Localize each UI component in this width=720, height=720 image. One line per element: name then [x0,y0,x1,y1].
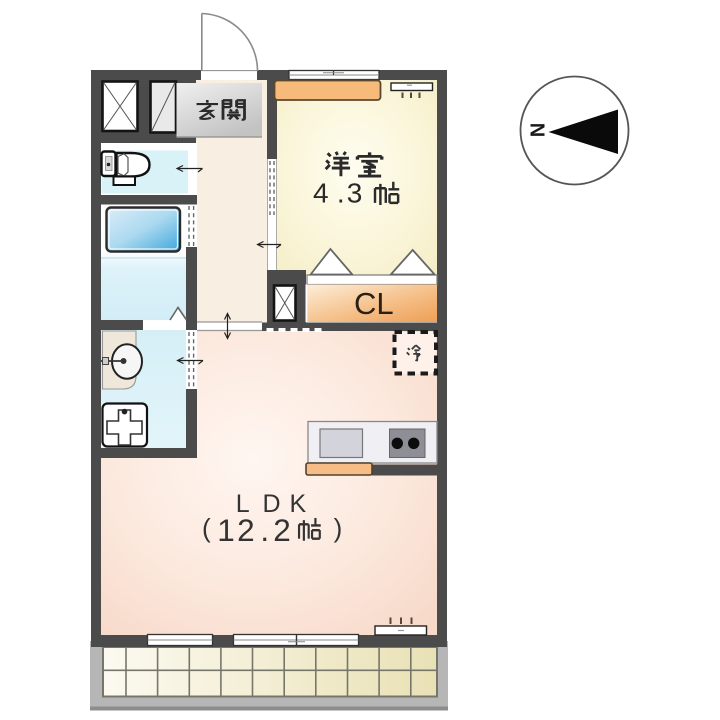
svg-text:N: N [526,123,548,137]
svg-text:2: 2 [237,512,255,548]
svg-text:1: 1 [217,512,235,548]
svg-text:(: ( [202,513,211,543]
svg-text:2: 2 [273,512,291,548]
svg-text:.: . [337,178,345,209]
svg-text:4: 4 [313,178,329,209]
svg-text:CL: CL [354,286,394,321]
svg-text:K: K [290,490,307,518]
svg-text:3: 3 [347,178,363,209]
svg-text:.: . [260,512,269,548]
svg-text:): ) [334,513,343,543]
